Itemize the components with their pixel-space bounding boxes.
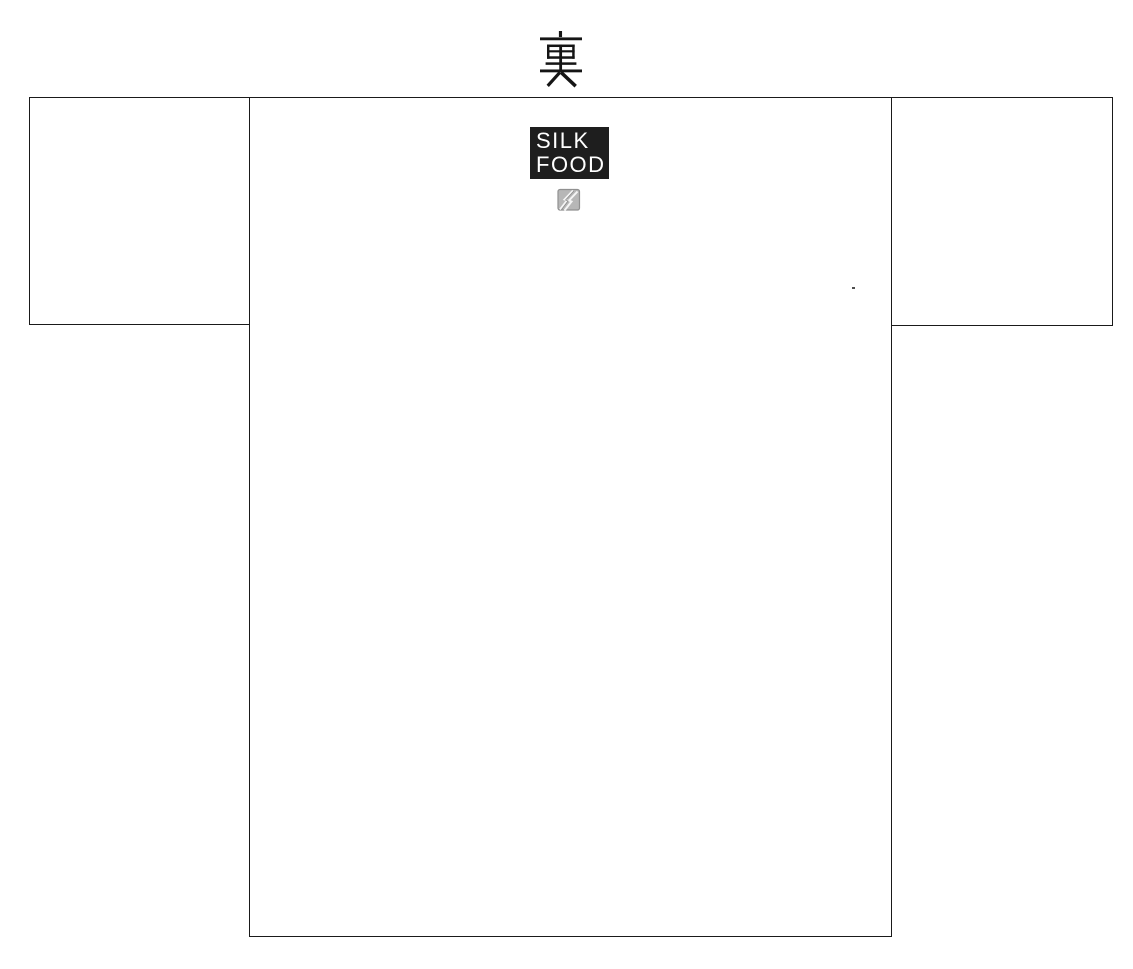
page-title-text: 裏 [540,27,598,87]
fragment-lightning-icon [556,187,582,213]
shirt-right-sleeve-outline [891,97,1113,326]
brand-logo: SILK FOOD [530,127,609,179]
page-canvas: 裏 SILK FOOD [0,0,1133,969]
brand-logo-line-2: FOOD [536,153,609,177]
speck-mark [852,287,855,289]
fragment-lightning-icon-graphic [556,187,582,213]
brand-logo-line-1: SILK [536,129,609,153]
page-title: 裏 [540,31,582,88]
shirt-left-sleeve-outline [29,97,250,325]
shirt-back-body-outline [249,97,892,937]
